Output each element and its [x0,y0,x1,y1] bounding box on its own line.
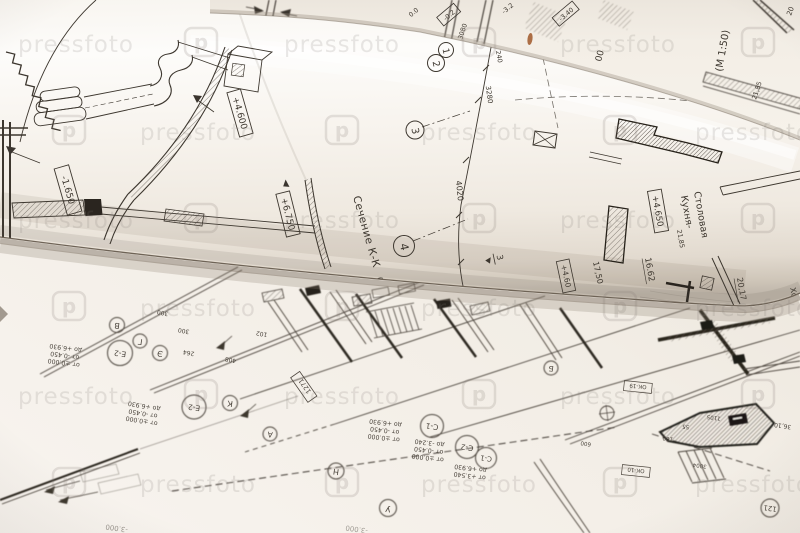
svg-text:p: p [751,30,765,54]
watermark-text: pressfoto [421,120,537,146]
watermark-text: pressfoto [18,208,134,234]
svg-text:p: p [62,118,76,142]
watermark-text: pressfoto [695,296,800,322]
svg-text:p: p [194,206,208,230]
svg-text:p: p [751,206,765,230]
watermark-text: pressfoto [695,120,800,146]
watermark-text: pressfoto [140,472,256,498]
watermark-text: pressfoto [140,120,256,146]
svg-text:p: p [335,470,349,494]
watermark-text: pressfoto [18,32,134,58]
svg-text:p: p [472,382,486,406]
svg-text:p: p [613,294,627,318]
watermark-text: pressfoto [284,384,400,410]
watermark-text: pressfoto [560,384,676,410]
watermark-text: pressfoto [695,472,800,498]
svg-text:p: p [472,206,486,230]
vignette [0,0,800,533]
svg-text:p: p [613,118,627,142]
svg-text:p: p [194,30,208,54]
watermark-text: pressfoto [421,296,537,322]
svg-text:p: p [613,470,627,494]
watermark-text: pressfoto [140,296,256,322]
watermark-text: pressfoto [18,384,134,410]
watermark-text: pressfoto [421,472,537,498]
watermark-text: pressfoto [560,32,676,58]
svg-text:p: p [335,294,349,318]
watermark-text: pressfoto [284,208,400,234]
watermark-text: pressfoto [560,208,676,234]
svg-text:p: p [335,118,349,142]
blueprint-photo-canvas: В Г Е-2 Э К Е-2 А Н У Б С-1 С-2 С-1 121 … [0,0,800,533]
svg-text:p: p [194,382,208,406]
svg-text:p: p [62,470,76,494]
svg-text:p: p [751,382,765,406]
blueprint-photo: В Г Е-2 Э К Е-2 А Н У Б С-1 С-2 С-1 121 … [0,0,800,533]
svg-text:p: p [62,294,76,318]
svg-text:p: p [472,30,486,54]
watermark-text: pressfoto [284,32,400,58]
